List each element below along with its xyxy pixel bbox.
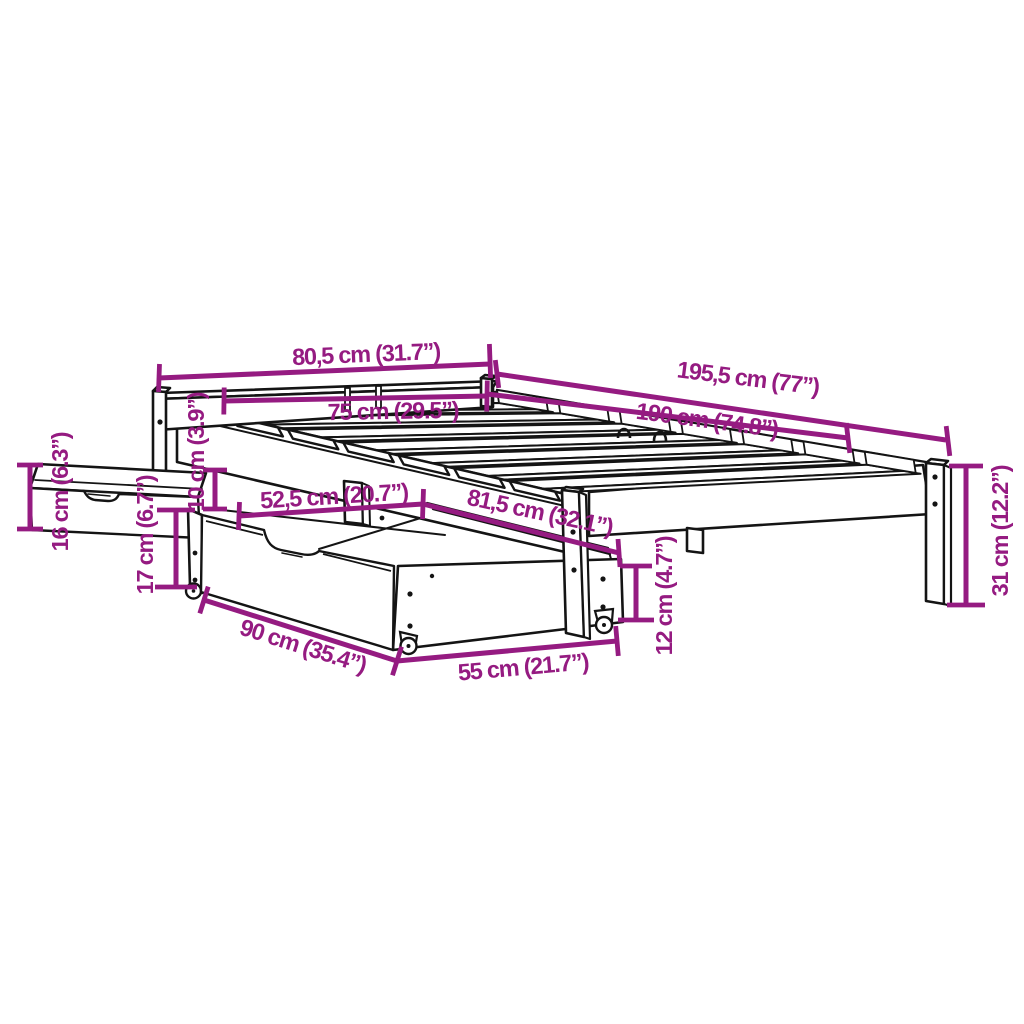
svg-text:75 cm (29.5”): 75 cm (29.5”) bbox=[327, 397, 459, 425]
svg-text:10 cm (3.9”): 10 cm (3.9”) bbox=[183, 392, 209, 511]
svg-text:12 cm (4.7”): 12 cm (4.7”) bbox=[651, 536, 677, 655]
svg-text:17 cm (6.7”): 17 cm (6.7”) bbox=[132, 475, 158, 594]
svg-text:31 cm (12.2”): 31 cm (12.2”) bbox=[987, 465, 1013, 596]
svg-text:16 cm (6.3”): 16 cm (6.3”) bbox=[47, 432, 73, 551]
